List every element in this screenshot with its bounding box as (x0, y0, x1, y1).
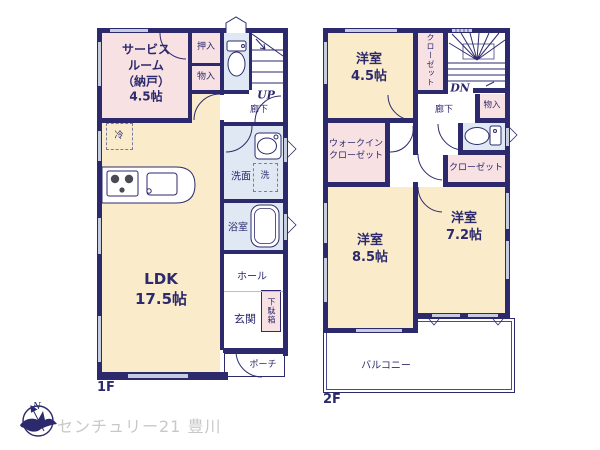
ldk-1f (102, 123, 220, 372)
label-senmen: 洗面 (231, 170, 251, 183)
wall (223, 348, 288, 353)
window (468, 314, 498, 317)
wall (475, 118, 505, 123)
wall (443, 182, 505, 187)
compass-north-label: N (32, 402, 42, 412)
compass-icon (20, 406, 57, 436)
label-ldk: LDK 17.5帖 (135, 270, 187, 310)
ldk-passage-1f (192, 94, 220, 123)
window (324, 42, 327, 84)
label-monoire-2f: 物入 (483, 100, 500, 111)
label-service-room: サービス ルーム （納戸） 4.5帖 (122, 42, 170, 105)
wall (385, 123, 390, 182)
window (432, 314, 460, 317)
floor1-label: 1F (97, 380, 115, 395)
brand-text: センチュリー21 豊川 (57, 413, 221, 437)
label-porch: ポーチ (249, 360, 276, 372)
window (98, 42, 101, 86)
floor2-label: 2F (323, 392, 341, 407)
wall (458, 150, 505, 155)
wall (224, 122, 283, 126)
window (110, 29, 148, 32)
wall (443, 33, 448, 94)
wall (192, 63, 220, 66)
wall (224, 250, 283, 254)
window (452, 29, 472, 32)
wall (224, 199, 283, 203)
label-getabako: 下駄箱 (267, 298, 275, 325)
label-up: UP (257, 89, 275, 104)
window (98, 316, 101, 362)
label-room45: 洋室 4.5帖 (351, 51, 387, 85)
label-genkan: 玄関 (234, 313, 256, 328)
wall (220, 120, 224, 350)
stairs-2f (448, 33, 505, 88)
window (506, 128, 509, 146)
wall (283, 28, 288, 356)
window (284, 138, 287, 162)
label-monoire-1f: 物入 (197, 72, 215, 84)
corridor-2f-south (418, 152, 443, 187)
label-wic: ウォークイン クローゼット (329, 139, 383, 163)
room-72-2f (418, 187, 505, 313)
toilet-room-1f (224, 33, 249, 90)
label-bath: 浴室 (228, 221, 248, 234)
wall (224, 90, 249, 94)
label-washer: 洗 (260, 171, 269, 183)
wall (413, 33, 418, 155)
window (98, 218, 101, 254)
window (98, 131, 101, 161)
wall (328, 118, 418, 123)
wall (328, 182, 390, 187)
stairs-1f (252, 33, 283, 90)
window (128, 374, 188, 378)
toilet-room-2f (463, 123, 505, 150)
label-rouka-1f: 廊下 (250, 105, 268, 117)
wall (192, 90, 220, 94)
wall (188, 33, 192, 123)
wall (418, 90, 443, 94)
window (324, 258, 327, 302)
wall (102, 118, 192, 123)
wall (413, 182, 418, 328)
window (506, 241, 509, 279)
label-fridge: 冷 (114, 131, 123, 143)
wall (443, 155, 448, 182)
label-balcony: バルコニー (361, 359, 411, 372)
window (356, 329, 402, 332)
label-closet-lower-2f: クローゼット (449, 163, 503, 175)
label-rouka-2f: 廊下 (435, 105, 453, 117)
window (324, 203, 327, 243)
wall (220, 33, 224, 95)
floorplan-canvas: N サービス ルーム （納戸） 4.5帖 押入 物入 UP 廊下 冷 LDK 1… (0, 0, 600, 450)
window (345, 29, 397, 32)
wall (249, 33, 252, 90)
genkan-step-line (224, 291, 283, 292)
window (284, 214, 287, 240)
label-room85: 洋室 8.5帖 (352, 232, 388, 266)
label-room72: 洋室 7.2帖 (446, 210, 482, 244)
label-hall: ホール (237, 270, 267, 283)
label-oshiire: 押入 (197, 42, 215, 54)
label-dn: DN (450, 82, 470, 97)
label-closet-upper-2f: クローゼット (426, 33, 434, 87)
corridor-2f-west (390, 123, 413, 182)
window (506, 193, 509, 229)
wall (473, 88, 505, 93)
